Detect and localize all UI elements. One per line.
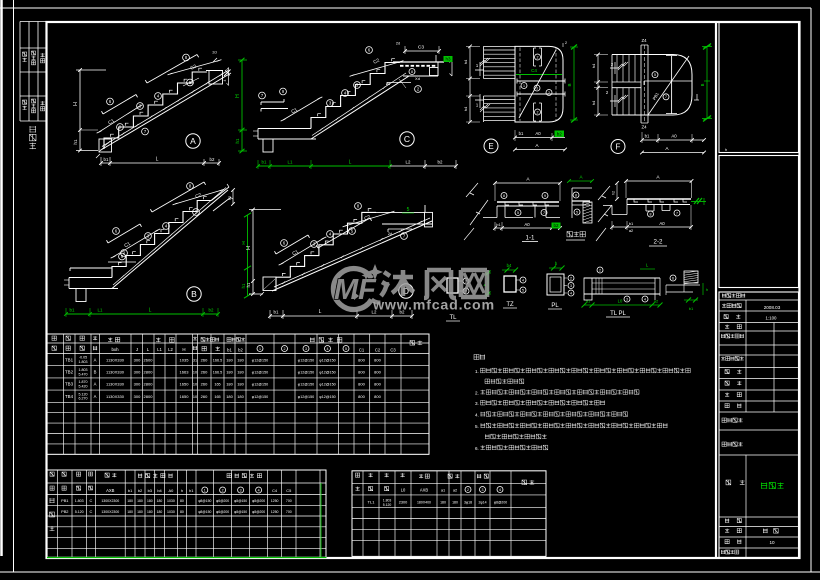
svg-text:2800: 2800: [144, 370, 154, 375]
svg-text:C1: C1: [359, 348, 365, 353]
svg-text:-0.05: -0.05: [79, 356, 87, 360]
svg-text:L0: L0: [401, 488, 406, 493]
svg-text:C5: C5: [286, 488, 291, 493]
svg-text:8: 8: [503, 194, 505, 198]
svg-text:A0: A0: [671, 134, 677, 139]
svg-text:2: 2: [537, 55, 539, 59]
svg-text:1.803: 1.803: [79, 360, 88, 364]
svg-text:1250: 1250: [271, 510, 279, 514]
svg-text:C2: C2: [375, 348, 381, 353]
svg-text:φ12@150: φ12@150: [252, 395, 268, 399]
svg-text:3φ18: 3φ18: [464, 501, 472, 505]
svg-text:6: 6: [672, 276, 674, 280]
svg-text:1130X330: 1130X330: [106, 370, 125, 375]
svg-text:1: 1: [259, 347, 261, 351]
svg-text:1030: 1030: [167, 499, 175, 503]
svg-text:165: 165: [214, 395, 220, 399]
svg-text:φ12@150: φ12@150: [319, 358, 335, 362]
svg-text:h1: h1: [189, 488, 193, 493]
svg-text:10: 10: [193, 395, 197, 399]
svg-text:700: 700: [286, 510, 292, 514]
svg-text:φ12@150: φ12@150: [252, 383, 268, 387]
svg-text:1130X330: 1130X330: [106, 357, 125, 362]
svg-text:TL1: TL1: [368, 500, 376, 505]
svg-text:C: C: [404, 134, 410, 144]
svg-text:3: 3: [536, 86, 538, 90]
svg-text:C3: C3: [418, 45, 424, 51]
svg-text:AXB: AXB: [106, 488, 115, 493]
svg-text:TL: TL: [449, 315, 457, 321]
svg-text:260: 260: [201, 370, 208, 375]
svg-text:1-1: 1-1: [526, 235, 536, 242]
svg-text:L: L: [319, 309, 322, 315]
svg-text:180: 180: [237, 357, 244, 362]
svg-text:260: 260: [201, 394, 208, 399]
svg-text:8: 8: [411, 70, 413, 74]
svg-text:1: 1: [204, 488, 206, 492]
svg-text:L1: L1: [157, 347, 162, 352]
svg-text:1:100: 1:100: [766, 316, 778, 321]
svg-text:b2: b2: [209, 308, 214, 313]
svg-text:h1: h1: [235, 138, 240, 143]
svg-text:B: B: [567, 83, 572, 86]
svg-text:800: 800: [374, 370, 381, 375]
svg-text:h2: h2: [228, 196, 232, 200]
svg-text:10: 10: [769, 540, 775, 545]
svg-text:180: 180: [226, 357, 233, 362]
svg-text:4: 4: [499, 488, 501, 492]
svg-text:5.470: 5.470: [79, 372, 88, 376]
svg-text:1.: 1.: [475, 369, 479, 374]
svg-text:φ12@150: φ12@150: [319, 371, 335, 375]
svg-text:TB3: TB3: [65, 382, 74, 387]
svg-text:2: 2: [599, 268, 601, 272]
svg-text:A0: A0: [524, 222, 530, 227]
svg-text:a1: a1: [441, 488, 445, 493]
svg-text:L: L: [149, 308, 152, 314]
svg-text:5: 5: [345, 347, 347, 351]
svg-text:A: A: [94, 382, 97, 387]
svg-text:2.: 2.: [475, 390, 479, 395]
svg-text:2d: 2d: [388, 232, 392, 236]
svg-text:φ12@150: φ12@150: [298, 383, 314, 387]
svg-text:φ8@150: φ8@150: [198, 510, 211, 514]
svg-text:180: 180: [226, 382, 233, 387]
svg-text:1130X330: 1130X330: [106, 382, 125, 387]
svg-text:φ12@150: φ12@150: [252, 358, 268, 362]
svg-text:b1: b1: [227, 348, 232, 353]
svg-text:b2: b2: [553, 223, 559, 228]
svg-text:80: 80: [180, 499, 184, 503]
svg-text:4: 4: [258, 488, 260, 492]
svg-text:8: 8: [575, 193, 577, 197]
svg-text:800: 800: [358, 370, 365, 375]
svg-text:A: A: [190, 136, 196, 146]
svg-text:7: 7: [676, 211, 678, 215]
svg-text:5.120: 5.120: [75, 510, 84, 514]
svg-text:b4: b4: [507, 263, 512, 268]
svg-text:800: 800: [374, 382, 381, 387]
svg-text:1030: 1030: [167, 510, 175, 514]
svg-text:2φ14: 2φ14: [478, 501, 486, 505]
svg-text:PL: PL: [551, 303, 559, 309]
svg-text:B: B: [700, 83, 705, 86]
svg-text:700: 700: [286, 499, 292, 503]
svg-text:φ8@200: φ8@200: [252, 510, 265, 514]
svg-text:h4: h4: [463, 106, 468, 111]
svg-text:5.420: 5.420: [79, 385, 88, 389]
svg-text:166.5: 166.5: [213, 371, 223, 375]
svg-text:A: A: [94, 357, 97, 362]
svg-text:φ12@150: φ12@150: [298, 358, 314, 362]
svg-text:φ12@150: φ12@150: [319, 383, 335, 387]
svg-text:1.803: 1.803: [79, 368, 88, 372]
svg-text:180: 180: [127, 510, 133, 514]
svg-text:300: 300: [134, 357, 141, 362]
svg-text:AXB: AXB: [420, 488, 428, 493]
svg-text:φ8@150: φ8@150: [234, 510, 247, 514]
svg-text:1300X2300: 1300X2300: [101, 499, 119, 503]
svg-text:1250: 1250: [271, 499, 279, 503]
svg-text:L1: L1: [98, 308, 103, 313]
svg-text:1650: 1650: [180, 394, 190, 399]
svg-text:2: 2: [467, 488, 469, 492]
svg-text:1: 1: [523, 84, 525, 88]
svg-text:B: B: [94, 370, 97, 375]
svg-text:PB2: PB2: [61, 509, 68, 514]
svg-text:A: A: [94, 394, 97, 399]
svg-text:5: 5: [654, 73, 656, 77]
svg-text:800: 800: [358, 382, 365, 387]
svg-text:5.: 5.: [475, 424, 479, 429]
svg-text:2: 2: [222, 488, 224, 492]
svg-text:1650: 1650: [180, 382, 190, 387]
svg-text:4.: 4.: [475, 412, 479, 417]
svg-text:b1: b1: [128, 488, 132, 493]
svg-text:L2: L2: [168, 347, 173, 352]
svg-text:10: 10: [193, 371, 197, 375]
svg-text:H: H: [235, 94, 241, 98]
svg-text:1.803: 1.803: [75, 499, 84, 503]
svg-text:180: 180: [157, 510, 163, 514]
svg-text:4: 4: [644, 297, 646, 301]
svg-text:180: 180: [237, 382, 244, 387]
svg-text:b1: b1: [689, 306, 694, 311]
svg-text:b2: b2: [438, 160, 443, 165]
svg-text:a1: a1: [586, 299, 591, 304]
svg-text:2d: 2d: [396, 42, 400, 46]
svg-text:A0: A0: [535, 131, 541, 136]
svg-text:φ8@200: φ8@200: [494, 501, 507, 505]
svg-text:300: 300: [134, 394, 141, 399]
svg-text:b1: b1: [496, 222, 501, 227]
svg-text:L0: L0: [618, 299, 623, 304]
svg-text:1.870: 1.870: [79, 380, 88, 384]
svg-text:3: 3: [570, 284, 572, 288]
svg-text:MF: MF: [334, 274, 377, 306]
svg-text:b1: b1: [262, 160, 267, 165]
svg-text:180: 180: [237, 370, 244, 375]
svg-text:C3: C3: [390, 348, 396, 353]
svg-text:800: 800: [374, 394, 381, 399]
svg-text:E: E: [488, 142, 493, 151]
svg-text:L1: L1: [288, 160, 293, 165]
svg-text:b1: b1: [645, 134, 650, 139]
svg-text:φ8@200: φ8@200: [252, 499, 265, 503]
svg-text:φ6@200: φ6@200: [216, 499, 229, 503]
svg-text:180: 180: [452, 501, 458, 505]
svg-text:180: 180: [157, 499, 163, 503]
svg-text:2: 2: [548, 91, 550, 95]
svg-text:b1: b1: [629, 221, 634, 226]
svg-text:L: L: [349, 160, 352, 166]
svg-text:TB1: TB1: [65, 357, 74, 362]
svg-text:1663: 1663: [180, 370, 190, 375]
svg-text:φ8@150: φ8@150: [198, 499, 211, 503]
svg-text:b2: b2: [210, 157, 215, 162]
svg-text:h2: h2: [612, 191, 616, 195]
svg-text:3: 3: [482, 488, 484, 492]
svg-text:h: h: [725, 147, 727, 152]
svg-text:h1: h1: [73, 139, 78, 145]
svg-text:H: H: [246, 246, 252, 250]
svg-text:φ12@150: φ12@150: [319, 395, 335, 399]
svg-text:7: 7: [665, 95, 667, 99]
svg-text:1035: 1035: [180, 357, 190, 362]
svg-text:b2: b2: [238, 348, 243, 353]
svg-text:6.270: 6.270: [79, 397, 88, 401]
svg-text:H: H: [241, 241, 246, 244]
svg-text:A0: A0: [659, 221, 665, 226]
svg-text:300: 300: [134, 382, 141, 387]
svg-text:260: 260: [201, 382, 208, 387]
svg-text:b2: b2: [138, 488, 142, 493]
svg-text:260: 260: [201, 357, 208, 362]
svg-text:3: 3: [626, 297, 628, 301]
svg-text:5: 5: [522, 288, 524, 292]
svg-text:2d: 2d: [212, 51, 216, 55]
svg-text:800: 800: [358, 357, 365, 362]
svg-text:h1: h1: [246, 282, 251, 287]
svg-text:b1: b1: [519, 131, 524, 136]
svg-text:5.120: 5.120: [383, 503, 392, 507]
svg-text:5: 5: [576, 210, 578, 214]
svg-text:3: 3: [240, 488, 242, 492]
svg-text:h4: h4: [591, 63, 596, 68]
svg-text:5: 5: [517, 211, 519, 215]
svg-text:180: 180: [147, 499, 153, 503]
svg-text:2: 2: [537, 110, 539, 114]
svg-text:bxh: bxh: [111, 347, 119, 352]
svg-text:h4: h4: [591, 100, 596, 105]
svg-text:C: C: [89, 498, 92, 503]
svg-text:a2: a2: [654, 299, 659, 304]
svg-text:C4: C4: [272, 488, 278, 493]
svg-text:2-2: 2-2: [654, 239, 664, 246]
svg-text:31: 31: [193, 358, 197, 362]
svg-text:φ12@150: φ12@150: [298, 371, 314, 375]
svg-text:180: 180: [137, 510, 143, 514]
svg-text:166.5: 166.5: [213, 358, 223, 362]
svg-text:φ12@150: φ12@150: [252, 371, 268, 375]
svg-text:B: B: [191, 289, 197, 299]
svg-text:Xd: Xd: [415, 76, 420, 81]
svg-text:180: 180: [226, 370, 233, 375]
svg-text:TZ: TZ: [506, 302, 514, 308]
svg-text:b1: b1: [104, 157, 109, 162]
svg-text:5.120: 5.120: [79, 392, 88, 396]
svg-text:2: 2: [284, 347, 286, 351]
svg-text:C: C: [89, 509, 92, 514]
svg-text:φ12@150: φ12@150: [298, 395, 314, 399]
svg-text:6.: 6.: [475, 446, 479, 451]
svg-text:L: L: [156, 157, 159, 163]
svg-text:1300X2300: 1300X2300: [101, 510, 119, 514]
svg-text:www.mfcad.com: www.mfcad.com: [372, 298, 495, 314]
svg-text:φ6@200: φ6@200: [216, 510, 229, 514]
svg-text:3: 3: [305, 347, 307, 351]
svg-text:F: F: [616, 143, 621, 152]
svg-text:2800: 2800: [144, 394, 154, 399]
svg-text:h: h: [706, 287, 708, 292]
svg-text:2600: 2600: [144, 357, 154, 362]
svg-text:TB4: TB4: [65, 394, 74, 399]
svg-text:300: 300: [134, 370, 141, 375]
svg-text:H: H: [73, 102, 79, 106]
svg-text:Z4: Z4: [641, 38, 647, 43]
svg-text:2800: 2800: [144, 382, 154, 387]
svg-text:b1: b1: [70, 308, 75, 313]
svg-text:7: 7: [543, 211, 545, 215]
svg-text:180: 180: [147, 510, 153, 514]
svg-text:10: 10: [193, 383, 197, 387]
svg-text:h4: h4: [463, 59, 468, 64]
svg-text:180X400: 180X400: [417, 501, 431, 505]
svg-text:180: 180: [440, 501, 446, 505]
svg-text:2008.03: 2008.03: [764, 305, 781, 310]
svg-text:1130X330: 1130X330: [106, 394, 125, 399]
svg-text:180: 180: [226, 394, 233, 399]
svg-text:180: 180: [127, 499, 133, 503]
svg-text:800: 800: [358, 394, 365, 399]
svg-text:J: J: [136, 347, 138, 352]
svg-text:9: 9: [544, 194, 546, 198]
svg-text:2d: 2d: [386, 82, 390, 86]
svg-text:3.: 3.: [475, 401, 479, 406]
svg-text:φ8@150: φ8@150: [234, 499, 247, 503]
svg-text:Z4: Z4: [641, 125, 647, 130]
svg-text:b2: b2: [557, 132, 563, 137]
svg-text:H: H: [182, 347, 185, 352]
svg-text:4: 4: [223, 80, 227, 82]
svg-text:4: 4: [570, 291, 572, 295]
svg-text:1.803: 1.803: [383, 499, 392, 503]
svg-text:a2: a2: [453, 488, 457, 493]
svg-text:2: 2: [570, 276, 572, 280]
svg-text:800: 800: [374, 357, 381, 362]
svg-text:2: 2: [565, 41, 567, 45]
svg-text:L2: L2: [406, 160, 411, 165]
svg-text:80: 80: [180, 510, 184, 514]
svg-text:TB2: TB2: [65, 370, 74, 375]
svg-text:8: 8: [650, 212, 652, 216]
svg-text:2300: 2300: [399, 501, 407, 505]
svg-text:4: 4: [522, 278, 524, 282]
svg-text:PB1: PB1: [61, 498, 68, 503]
svg-text:h: h: [181, 488, 183, 493]
svg-text:5: 5: [407, 207, 410, 213]
svg-text:180: 180: [237, 394, 244, 399]
svg-text:a2: a2: [629, 229, 633, 233]
svg-text:165: 165: [214, 383, 220, 387]
svg-text:b1: b1: [274, 310, 279, 315]
svg-text:4: 4: [327, 347, 329, 351]
svg-text:b3: b3: [148, 488, 152, 493]
svg-text:A0: A0: [169, 488, 175, 493]
svg-text:TL PL: TL PL: [610, 311, 626, 317]
svg-text:C4: C4: [531, 68, 537, 73]
svg-text:180: 180: [137, 499, 143, 503]
svg-text:h3: h3: [445, 57, 451, 62]
